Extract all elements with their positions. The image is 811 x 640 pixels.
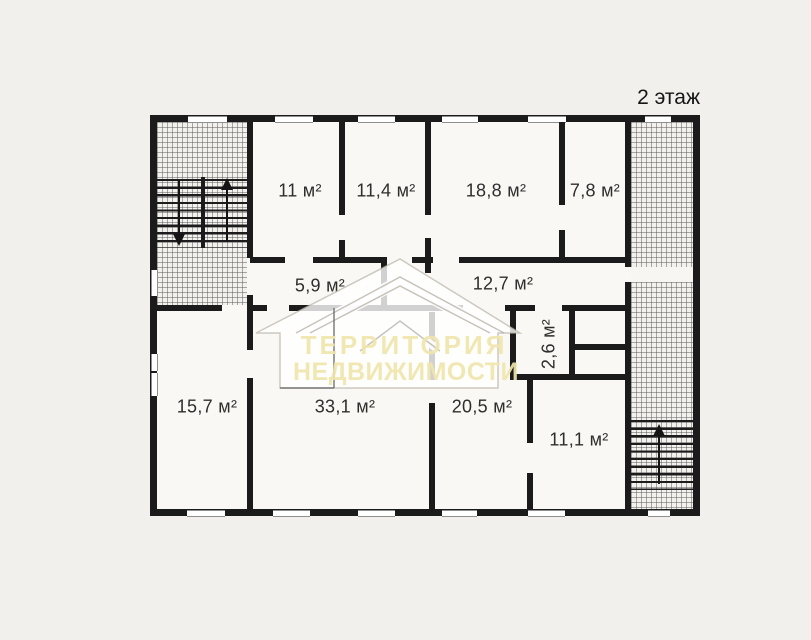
watermark-text-line2: НЕДВИЖИМОСТИ — [293, 358, 519, 387]
stairs-arrows-right — [631, 420, 693, 490]
wall-segment — [150, 305, 222, 311]
window — [645, 116, 671, 123]
window — [528, 510, 565, 517]
wall-exterior-right — [693, 115, 700, 516]
gallery-landing — [631, 267, 693, 282]
wall-segment — [339, 122, 345, 215]
watermark-text-line1: ТЕРРИТОРИЯ — [301, 330, 508, 361]
floor-title: 2 этаж — [600, 86, 700, 110]
room-label-15-7: 15,7 м² — [177, 397, 238, 418]
room-label-11: 11 м² — [278, 181, 322, 202]
window — [273, 510, 310, 517]
wall-segment — [562, 305, 628, 311]
wall-exterior-bottom — [150, 509, 700, 516]
window — [442, 116, 478, 123]
wall-segment — [527, 473, 533, 509]
room-label-7-8: 7,8 м² — [570, 181, 620, 202]
window — [187, 510, 225, 517]
wall-segment — [559, 122, 565, 205]
window — [358, 116, 395, 123]
wall-wc-bottom — [510, 374, 628, 380]
wall-stairwell-right — [247, 122, 253, 258]
wall-gallery-left — [625, 122, 631, 267]
wall-segment — [429, 403, 435, 509]
wall-exterior-top — [150, 115, 700, 122]
window — [358, 510, 395, 517]
floor-plan-canvas: 2 этаж — [0, 0, 811, 640]
arrow-down-icon — [173, 180, 185, 246]
window — [275, 116, 313, 123]
room-label-18-8: 18,8 м² — [466, 181, 527, 202]
window — [151, 354, 158, 371]
arrow-up-icon — [653, 424, 665, 484]
wall-segment — [425, 122, 431, 215]
room-label-2-6: 2,6 м² — [539, 319, 560, 369]
room-label-11-4: 11,4 м² — [356, 181, 415, 202]
room-label-11-1: 11,1 м² — [549, 430, 608, 451]
wall-segment — [527, 380, 533, 443]
window — [442, 510, 477, 517]
window — [151, 373, 158, 396]
wall-wc-middle — [575, 344, 628, 350]
stairs-arrows-left — [157, 122, 247, 305]
window — [648, 510, 670, 517]
wall-exterior-left — [150, 115, 157, 516]
arrow-up-icon — [221, 178, 233, 242]
